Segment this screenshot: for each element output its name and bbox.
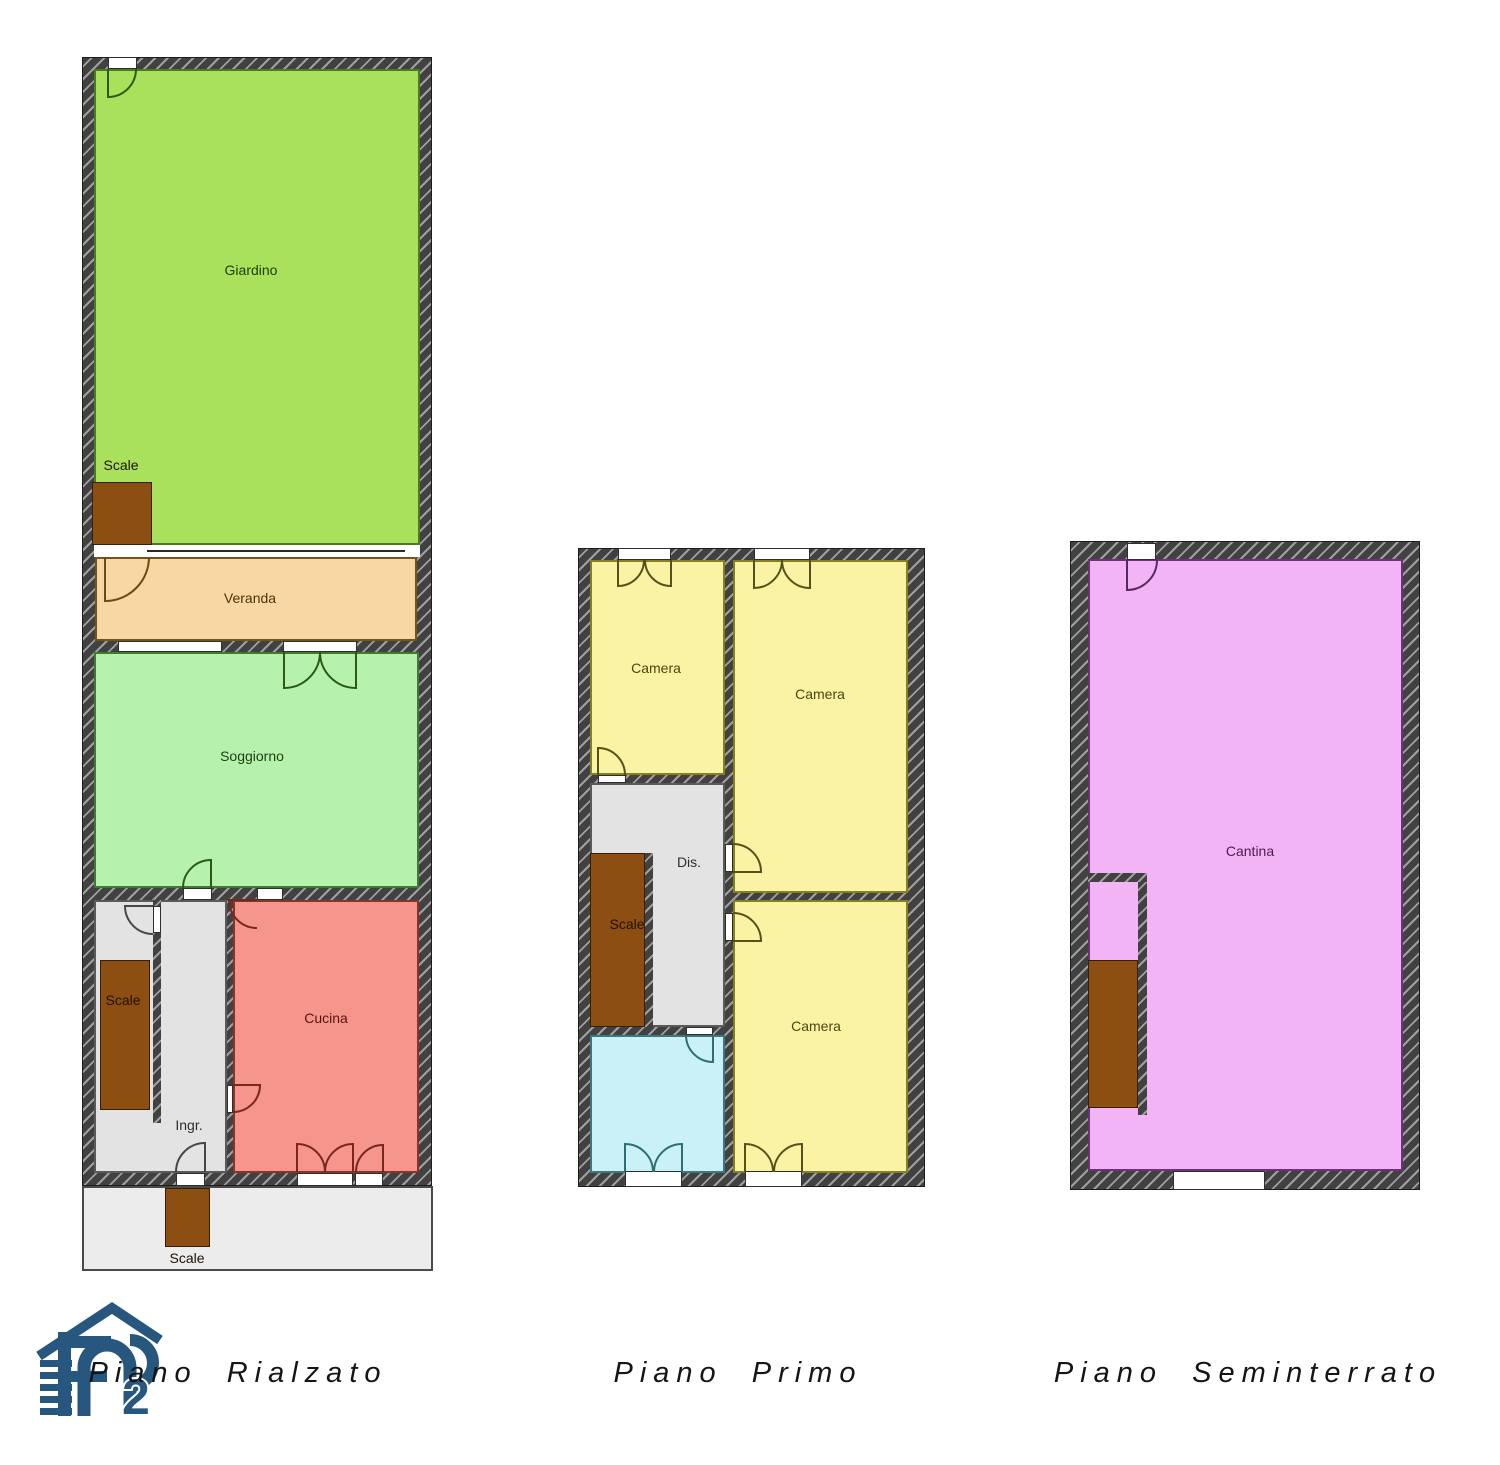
door-opening (1127, 543, 1156, 560)
interior-wall (153, 900, 161, 1123)
french-door-opening (297, 1173, 353, 1186)
room-camera-2 (733, 560, 908, 893)
porch-landing (82, 1186, 433, 1271)
door-opening (183, 888, 212, 900)
label-ingresso: Ingr. (175, 1117, 202, 1133)
stairs-porch (165, 1188, 210, 1247)
garden-veranda-opening (94, 545, 420, 557)
label-scale-porch: Scale (169, 1250, 204, 1266)
agency-logo: 2 (36, 1292, 168, 1418)
stairs-giardino (92, 482, 152, 545)
stair-enclosure-wall (1138, 882, 1147, 1115)
label-scale-piano-primo: Scale (609, 916, 644, 932)
french-window-opening (625, 1171, 682, 1187)
window-opening (754, 548, 810, 560)
label-soggiorno: Soggiorno (220, 748, 284, 764)
door-opening (227, 1085, 233, 1113)
door-opening (598, 775, 626, 783)
door-opening (176, 1173, 205, 1186)
floor-title-piano-primo: Piano Primo (614, 1357, 863, 1390)
label-disimpegno: Dis. (677, 854, 701, 870)
window-opening (118, 641, 222, 652)
door-opening (355, 1173, 383, 1186)
window-opening (283, 641, 357, 652)
floor-title-piano-rialzato: Piano Rialzato (89, 1357, 388, 1390)
door-opening (108, 57, 137, 69)
stairs-ingresso (100, 960, 150, 1110)
door-opening (686, 1027, 713, 1035)
label-cantina: Cantina (1226, 843, 1274, 859)
label-veranda: Veranda (224, 590, 276, 606)
stair-enclosure-wall (1088, 873, 1147, 882)
interior-wall (645, 853, 653, 1027)
window-opening (1173, 1171, 1265, 1190)
label-camera-1: Camera (631, 660, 681, 676)
room-camera-3 (733, 900, 908, 1173)
floor-title-piano-seminterrato: Piano Seminterrato (1054, 1357, 1442, 1390)
label-cucina: Cucina (304, 1010, 348, 1026)
door-opening (257, 888, 283, 900)
label-scale-giardino: Scale (103, 457, 138, 473)
room-bagno (590, 1035, 725, 1173)
stairs-cantina (1088, 960, 1138, 1108)
label-camera-2: Camera (795, 686, 845, 702)
door-opening (725, 844, 733, 872)
label-scale-ingresso: Scale (105, 992, 140, 1008)
french-window-opening (745, 1171, 802, 1187)
label-giardino: Giardino (225, 262, 278, 278)
room-cucina (233, 900, 419, 1173)
door-opening (153, 906, 161, 933)
window-opening (618, 548, 671, 560)
room-giardino (94, 69, 420, 545)
room-soggiorno (94, 652, 419, 888)
label-camera-3: Camera (791, 1018, 841, 1034)
stairs-piano-primo (590, 853, 645, 1027)
door-opening (725, 913, 733, 941)
